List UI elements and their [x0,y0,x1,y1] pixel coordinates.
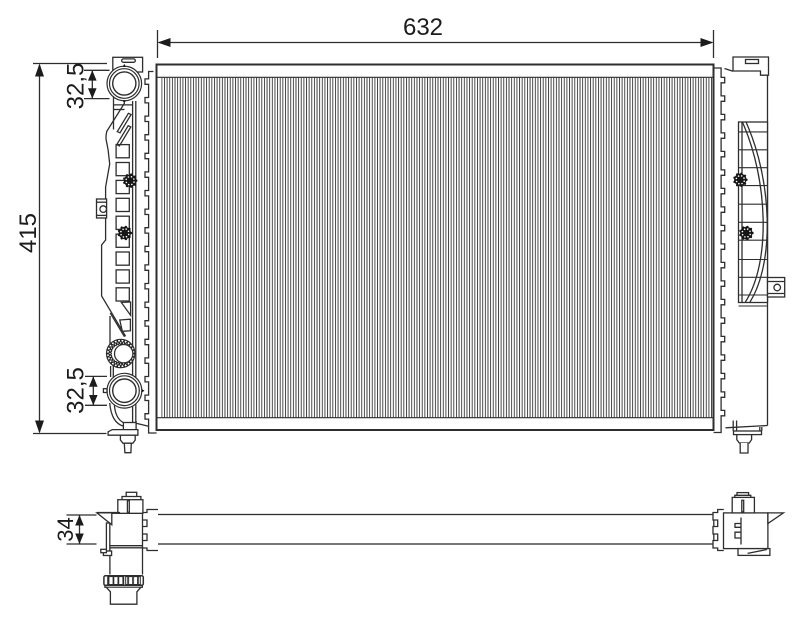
svg-text:415: 415 [15,213,42,253]
svg-text:32,5: 32,5 [63,63,90,110]
svg-text:34: 34 [53,517,78,541]
svg-text:32,5: 32,5 [63,367,90,414]
svg-text:632: 632 [403,14,443,41]
